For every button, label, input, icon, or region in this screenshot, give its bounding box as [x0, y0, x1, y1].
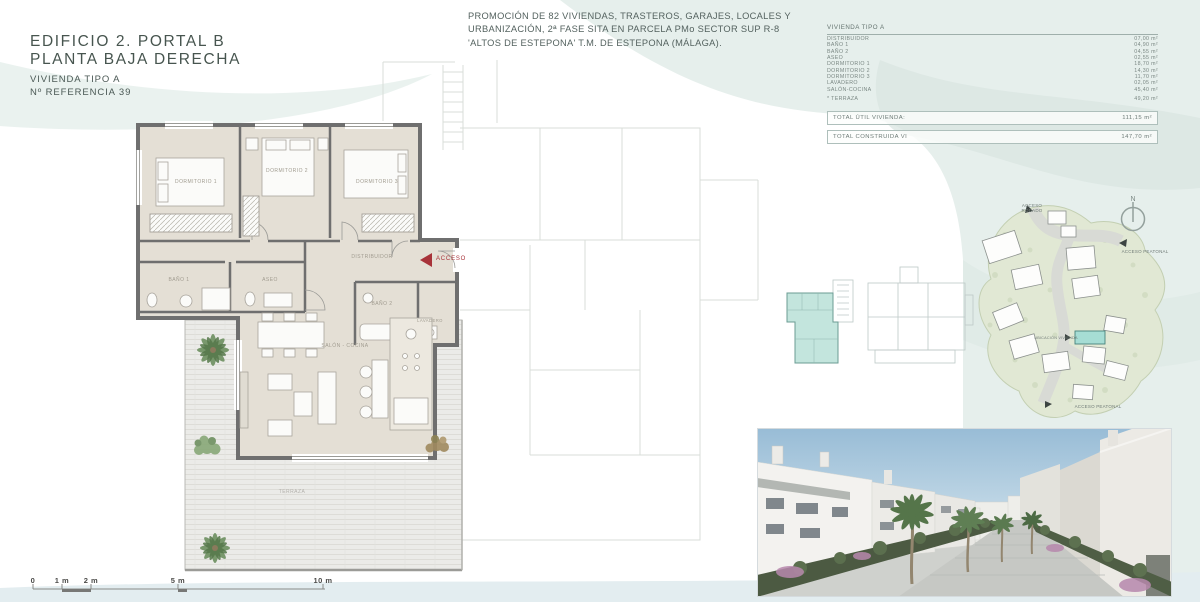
room-label-dormitorio-2: DORMITORIO 2 [266, 168, 308, 174]
area-table-title: VIVIENDA TIPO A [827, 24, 1158, 35]
site-label-acceso-peatonal-bottom: ACCESO PEATONAL [1075, 404, 1122, 409]
key-plan [787, 267, 973, 363]
brochure-page: { "header": { "title_line1": "EDIFICIO 2… [0, 0, 1200, 602]
total-construida-label: TOTAL CONSTRUIDA VI [833, 134, 907, 140]
area-row-label: SALÓN-COCINA [827, 87, 872, 93]
area-row-terraza: * TERRAZA49,20 m² [827, 96, 1158, 102]
acceso-label: ACCESO [436, 256, 466, 262]
compass-north-label: N [1130, 196, 1135, 203]
area-row-value: 02,55 m² [1134, 55, 1158, 61]
area-table: DISTRIBUIDOR07,00 m² BAÑO 104,90 m² BAÑO… [827, 36, 1158, 102]
area-row-value: 14,30 m² [1134, 68, 1158, 74]
site-label-acceso-peatonal-right: ACCESO PEATONAL [1122, 249, 1169, 254]
area-row-value: 45,40 m² [1134, 87, 1158, 93]
scale-label-2m: 2 m [84, 576, 98, 585]
scale-label-1m: 1 m [55, 576, 69, 585]
area-row-label: DORMITORIO 3 [827, 74, 870, 80]
total-util-box: TOTAL ÚTIL VIVIENDA: 111,15 m² [827, 111, 1158, 125]
area-row: SALÓN-COCINA45,40 m² [827, 86, 1158, 92]
unit-type-label: VIVIENDA TIPO A [30, 74, 131, 87]
area-row-value: 04,55 m² [1134, 49, 1158, 55]
scale-label-0: 0 [31, 576, 36, 585]
area-row-label: DORMITORIO 2 [827, 68, 870, 74]
floor-plan [134, 121, 462, 570]
reference-label: Nº REFERENCIA 39 [30, 87, 131, 100]
room-label-salon-cocina: SALÓN - COCINA [321, 343, 368, 349]
key-plan-highlight [787, 293, 838, 363]
room-label-terraza: TERRAZA [279, 489, 306, 495]
room-label-distribuidor: DISTRIBUIDOR [351, 254, 392, 260]
area-row-label: * TERRAZA [827, 96, 858, 102]
total-util-label: TOTAL ÚTIL VIVIENDA: [833, 115, 905, 121]
room-label-bano-2: BAÑO 2 [371, 301, 392, 307]
room-label-dormitorio-1: DORMITORIO 1 [175, 179, 217, 185]
area-row-value: 04,90 m² [1134, 42, 1158, 48]
page-title-line1: EDIFICIO 2. PORTAL B [30, 33, 241, 51]
room-label-lavadero: LAVADERO [417, 318, 443, 323]
area-row-value: 07,00 m² [1134, 36, 1158, 42]
promo-line2: URBANIZACIÓN, 2ª FASE SITA EN PARCELA PM… [468, 23, 828, 36]
area-row-value: 18,70 m² [1134, 61, 1158, 67]
page-subtitle: VIVIENDA TIPO A Nº REFERENCIA 39 [30, 74, 131, 99]
area-row-label: LAVADERO [827, 80, 858, 86]
room-label-aseo: ASEO [262, 277, 278, 283]
room-label-bano-1: BAÑO 1 [168, 277, 189, 283]
promo-line3: 'ALTOS DE ESTEPONA' T.M. DE ESTEPONA (MÁ… [468, 37, 828, 50]
area-row-label: DORMITORIO 1 [827, 61, 870, 67]
page-title-line2: PLANTA BAJA DERECHA [30, 51, 241, 69]
site-label-acceso-rodado: ACCESO RODADO [1017, 203, 1047, 214]
total-util-value: 111,15 m² [1122, 115, 1152, 121]
room-label-dormitorio-3: DORMITORIO 3 [356, 179, 398, 185]
total-construida-value: 147,70 m² [1121, 134, 1152, 140]
area-row-label: BAÑO 2 [827, 49, 849, 55]
render-photo [757, 415, 1172, 598]
area-row-value: 11,70 m² [1135, 74, 1158, 80]
total-construida-box: TOTAL CONSTRUIDA VI 147,70 m² [827, 130, 1158, 144]
area-row-label: BAÑO 1 [827, 42, 849, 48]
area-row-value: 02,05 m² [1134, 80, 1158, 86]
promo-text: PROMOCIÓN DE 82 VIVIENDAS, TRASTEROS, GA… [468, 10, 828, 50]
scale-label-10m: 10 m [313, 576, 332, 585]
area-row-label: ASEO [827, 55, 843, 61]
page-title: EDIFICIO 2. PORTAL B PLANTA BAJA DERECHA [30, 33, 241, 69]
site-label-ubicacion: UBICACIÓN VIVIENDA [1034, 336, 1077, 341]
promo-line1: PROMOCIÓN DE 82 VIVIENDAS, TRASTEROS, GA… [468, 10, 828, 23]
site-highlight-unit [1075, 331, 1105, 344]
scale-label-5m: 5 m [171, 576, 185, 585]
area-row-value: 49,20 m² [1134, 96, 1158, 102]
